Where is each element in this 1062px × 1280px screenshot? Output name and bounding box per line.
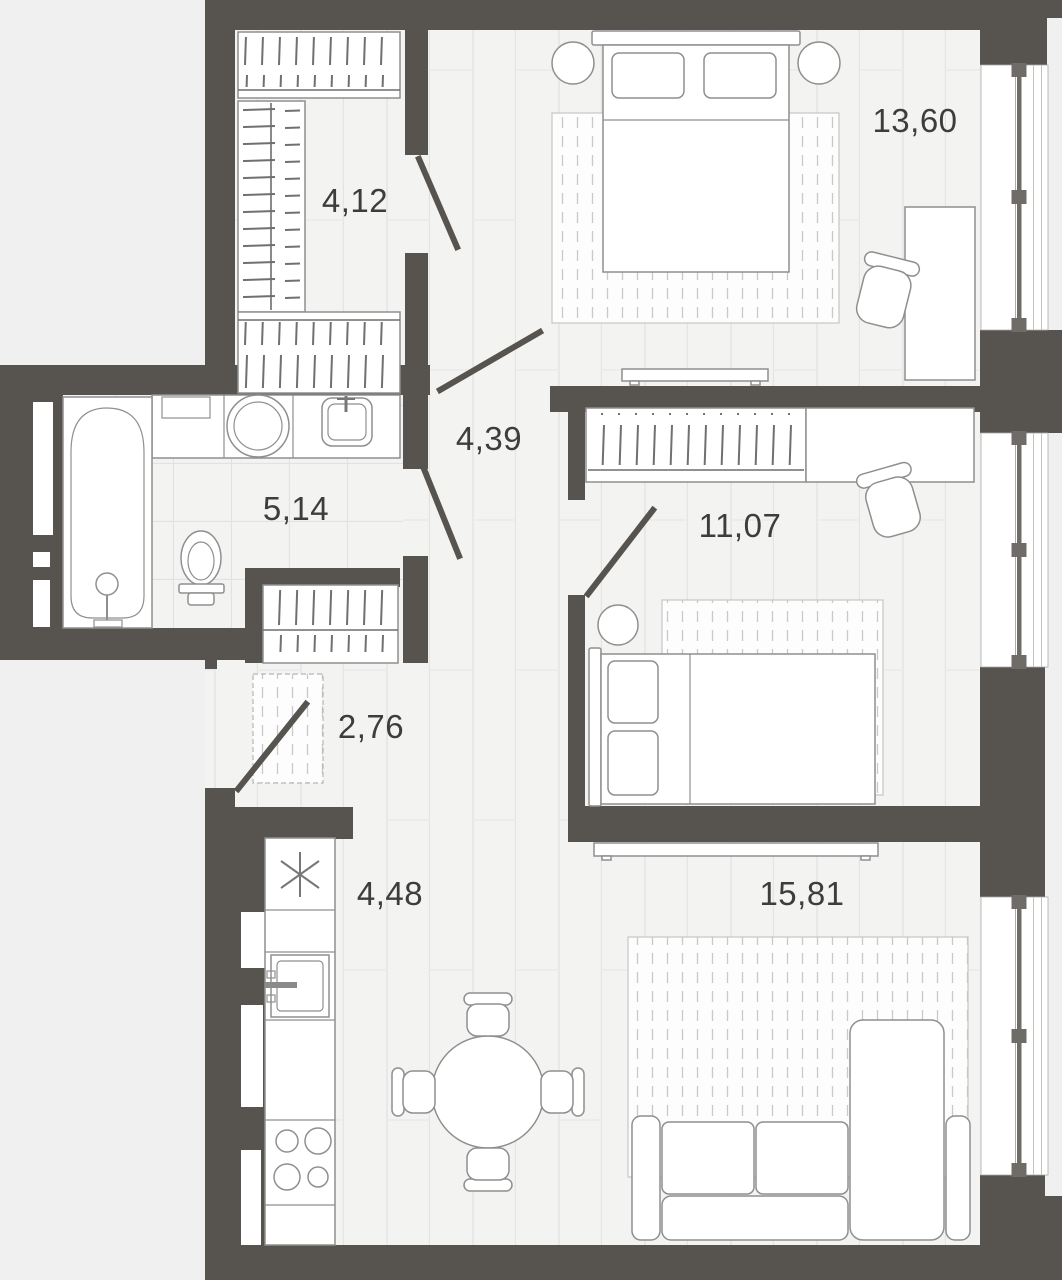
dining-chair: [464, 993, 512, 1036]
wall-bathroom-left: [0, 395, 63, 660]
vent-shaft: [33, 552, 50, 567]
wall-entry-nub: [205, 660, 217, 669]
tv-console: [622, 369, 768, 381]
console-foot: [630, 381, 639, 385]
entry-furniture: [263, 585, 398, 663]
wall-left-lower: [205, 788, 235, 1280]
wardrobe-hatch: [268, 590, 393, 652]
wall-pier-bottom-edge: [1045, 1196, 1062, 1280]
tv-console: [594, 843, 878, 856]
wall-bedroom2-left-upper: [568, 412, 585, 500]
vent-shaft: [33, 580, 50, 627]
wall-closet-left: [205, 30, 235, 365]
sofa-cushion: [756, 1122, 848, 1194]
room-label-kitchen: 4,48: [357, 875, 423, 912]
room-label-bathroom: 5,14: [263, 490, 329, 527]
wall-closet-right-upper: [405, 30, 428, 155]
window-bedroom-2: [981, 431, 1048, 669]
wardrobe-hatch: [243, 37, 395, 87]
bed-headboard: [592, 31, 800, 45]
room-label-bedroom-1: 13,60: [872, 102, 957, 139]
dining-chair: [541, 1068, 584, 1116]
wall-pier-top-corner: [980, 0, 1047, 65]
dining-chair: [392, 1068, 435, 1116]
floor-plan: 4,12 13,60 4,39 5,14 11,07 2,76 4,48 15,…: [0, 0, 1062, 1280]
windows: [981, 63, 1048, 1177]
wall-bottom: [205, 1245, 1015, 1280]
sofa-cushion: [662, 1122, 754, 1194]
sofa-armrest: [946, 1116, 970, 1240]
nightstand: [798, 42, 840, 84]
pillow: [612, 53, 684, 98]
vent-shaft: [241, 1150, 261, 1245]
pillow: [608, 661, 658, 723]
desk: [905, 207, 975, 380]
wall-bathroom-right-upper: [403, 365, 428, 469]
bed-headboard: [589, 648, 601, 806]
vent-shaft: [33, 402, 53, 535]
nightstand: [598, 605, 638, 645]
wall-entry-stub: [245, 585, 263, 663]
room-label-hallway: 4,39: [456, 420, 522, 457]
console-foot: [861, 856, 870, 860]
console-foot: [751, 381, 760, 385]
wardrobe-hatch: [243, 322, 395, 388]
wall-pier-top-edge: [1047, 0, 1062, 18]
room-label-walk-in-closet: 4,12: [322, 182, 388, 219]
wall-pier-2: [980, 667, 1045, 897]
wall-bedroom2-left-lower: [568, 595, 585, 806]
sofa-armrest: [632, 1116, 660, 1240]
wall-bathroom-right-lower: [403, 556, 428, 663]
dining-chair: [464, 1148, 512, 1191]
sofa-chaise: [850, 1020, 944, 1240]
wardrobe-hatch: [591, 413, 801, 465]
vent-shaft: [241, 912, 265, 968]
console-foot: [602, 856, 611, 860]
pillow: [704, 53, 776, 98]
sofa-seat: [662, 1196, 848, 1240]
wall-bedroom2-bottom: [568, 806, 980, 842]
wall-bathroom-bottom: [0, 628, 245, 660]
vent-shaft: [241, 1005, 263, 1107]
nightstand: [552, 42, 594, 84]
room-label-living-room: 15,81: [759, 875, 844, 912]
wall-entry-wardrobe-top: [245, 568, 400, 587]
wall-pier-1: [980, 330, 1062, 433]
bathtub: [63, 397, 152, 628]
washing-machine: [227, 395, 289, 457]
room-label-bedroom-2: 11,07: [699, 507, 782, 544]
kitchen-furniture: [265, 838, 335, 1245]
kitchen-sink: [265, 955, 329, 1017]
window-bedroom-1: [981, 63, 1048, 332]
wall-closet-right-lower: [405, 253, 428, 365]
room-label-entry: 2,76: [338, 708, 404, 745]
wall-pier-bottom: [980, 1175, 1045, 1280]
bathroom-sink: [322, 396, 372, 446]
floor-plan-page: 4,12 13,60 4,39 5,14 11,07 2,76 4,48 15,…: [0, 0, 1062, 1280]
pillow: [608, 731, 658, 795]
dining-table: [432, 1036, 544, 1148]
wall-top: [205, 0, 995, 30]
window-living-room: [981, 895, 1048, 1177]
